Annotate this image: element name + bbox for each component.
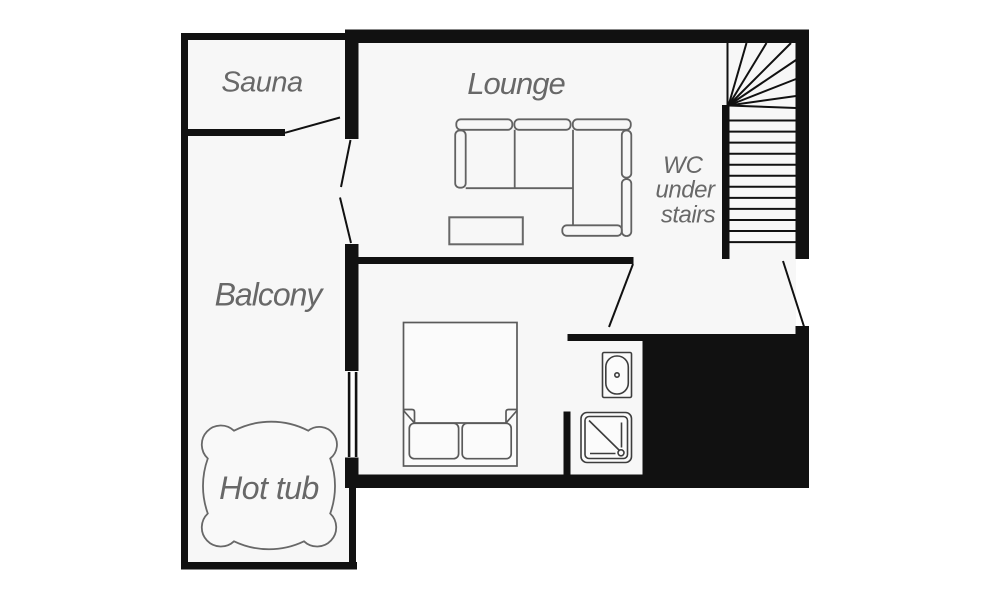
- svg-text:stairs: stairs: [661, 202, 716, 229]
- svg-text:Hot tub: Hot tub: [219, 470, 319, 506]
- svg-text:WC: WC: [663, 152, 704, 179]
- svg-text:Balcony: Balcony: [215, 277, 325, 313]
- svg-text:Lounge: Lounge: [467, 66, 565, 101]
- svg-text:under: under: [656, 177, 716, 204]
- svg-text:Sauna: Sauna: [221, 67, 303, 99]
